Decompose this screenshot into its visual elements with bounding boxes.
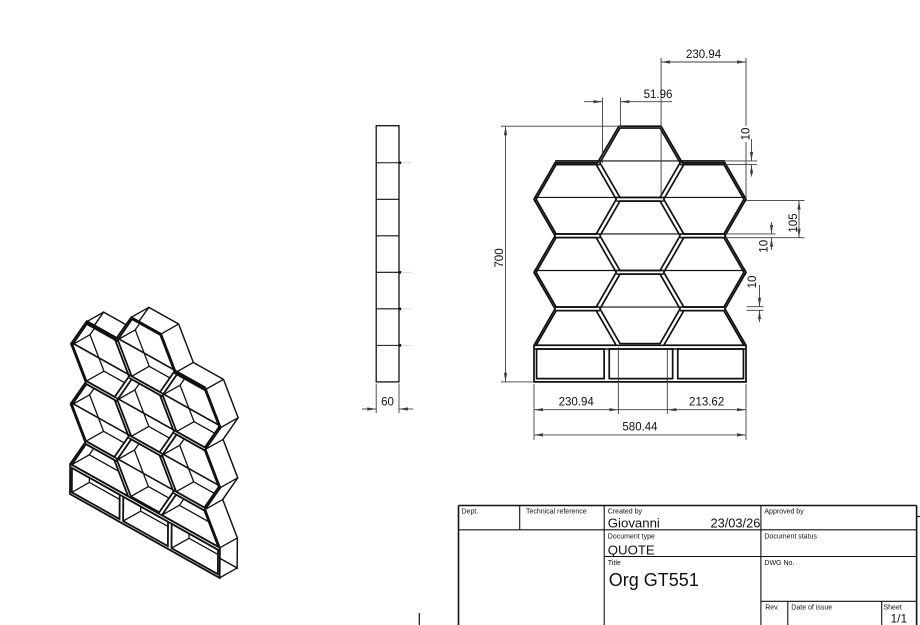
svg-text:DWG No.: DWG No. [764,560,794,567]
svg-text:10: 10 [759,240,771,253]
svg-text:QUOTE: QUOTE [608,542,655,557]
svg-text:Dept.: Dept. [462,509,479,516]
svg-text:60: 60 [381,397,394,409]
svg-text:Date of issue: Date of issue [791,604,832,611]
svg-text:Sheet: Sheet [884,604,902,611]
svg-text:230.94: 230.94 [559,397,595,409]
svg-text:Document status: Document status [764,533,817,540]
svg-text:10: 10 [747,276,759,289]
svg-text:230.94: 230.94 [686,49,722,61]
svg-text:105: 105 [788,213,800,232]
svg-text:Technical reference: Technical reference [526,509,587,516]
svg-text:1/1: 1/1 [891,612,908,625]
svg-text:Org GT551: Org GT551 [609,570,699,590]
svg-text:10: 10 [740,128,752,141]
svg-text:Giovanni: Giovanni [608,515,660,530]
svg-text:213.62: 213.62 [689,397,724,409]
svg-text:700: 700 [494,248,506,267]
svg-text:Document type: Document type [608,533,655,540]
svg-text:580.44: 580.44 [622,422,658,434]
svg-text:51.96: 51.96 [644,89,673,101]
svg-text:23/03/26: 23/03/26 [711,515,761,530]
svg-text:Approved by: Approved by [764,509,804,516]
svg-text:Rev.: Rev. [765,604,779,611]
svg-text:Title: Title [608,560,621,567]
